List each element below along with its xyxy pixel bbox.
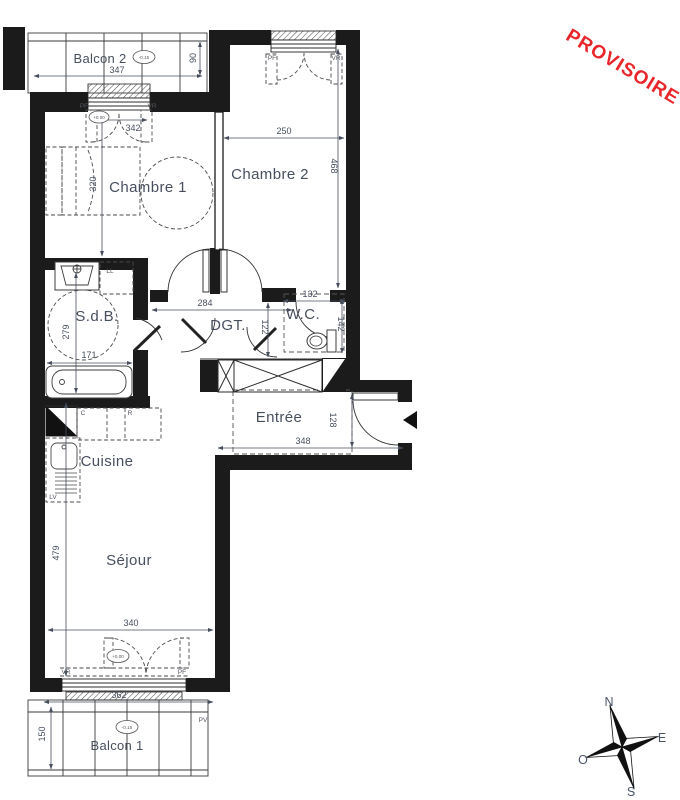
walls xyxy=(3,27,412,692)
sink-faucet xyxy=(62,445,66,449)
partition-chambre1-chambre2 xyxy=(215,112,223,250)
tag-pf-chambre2: PF xyxy=(268,55,276,62)
wall-segment xyxy=(3,27,25,90)
room-label-balcon-2: Balcon 2 xyxy=(74,51,127,66)
tag-lv-dishwasher: LV xyxy=(49,494,57,501)
wall-segment xyxy=(200,360,218,392)
wall-segment xyxy=(150,92,210,112)
wardrobe xyxy=(46,147,62,215)
door-leaf-dgt xyxy=(182,319,206,343)
entrance-arrow-icon xyxy=(403,411,417,429)
tag-vr-chambre2: VR xyxy=(331,55,340,62)
door-jamb xyxy=(180,638,189,668)
closets xyxy=(218,358,346,392)
tag-vr-chambre1: VR xyxy=(147,103,156,110)
compass-west-label: O xyxy=(578,753,588,767)
dim-entree-depth: 128 xyxy=(328,412,338,427)
compass-east-label: E xyxy=(658,731,666,745)
wall-segment xyxy=(150,290,168,302)
tag-c-cooktop: C xyxy=(81,410,86,417)
counter xyxy=(77,408,161,440)
stamp-text: PROVISOIRE xyxy=(562,25,680,109)
floor-plan: 347 90 342 250 468 320 279 171 284 122 1… xyxy=(0,0,680,800)
sdb-fixtures xyxy=(46,262,133,398)
dim-balcon1-depth: 150 xyxy=(37,726,47,741)
wall-segment xyxy=(336,30,360,45)
room-label-chambre-1: Chambre 1 xyxy=(109,179,187,196)
duct-kitchen-triangle xyxy=(46,406,77,436)
dim-chambre2-width: 250 xyxy=(276,126,291,136)
dim-sejour-depth: 479 xyxy=(51,545,61,560)
room-label-sdb: S.d.B. xyxy=(75,308,118,325)
dim-wc-depth: 142 xyxy=(336,316,346,331)
room-label-dgt: DGT. xyxy=(210,317,246,334)
dim-sejour-width: 340 xyxy=(123,618,138,628)
wall-segment xyxy=(186,678,230,692)
window-frame xyxy=(271,40,336,52)
toilet-tank xyxy=(327,330,336,352)
shutter-box xyxy=(88,84,150,98)
compass-north-label: N xyxy=(604,695,613,709)
door-post xyxy=(210,248,220,294)
wall-segment xyxy=(209,30,271,45)
wall-segment xyxy=(346,380,412,392)
tag-pv-balcon1: PV xyxy=(199,717,208,724)
tag-pf-sejour: PF xyxy=(178,669,186,676)
room-label-chambre-2: Chambre 2 xyxy=(231,166,309,183)
level-chambre1-door: +0.00 xyxy=(93,115,105,120)
level-sejour-door: +0.00 xyxy=(112,654,124,659)
wall-segment xyxy=(133,258,148,320)
window-frame xyxy=(88,98,150,110)
dim-balcon2-depth: 90 xyxy=(188,53,198,63)
level-balcon1: -0.15 xyxy=(122,725,133,730)
shutter-box xyxy=(271,31,336,40)
door-arc-entrance xyxy=(353,401,398,445)
dim-chambre2-depth: 468 xyxy=(329,158,339,173)
sink-bowl xyxy=(51,443,77,469)
door-swing xyxy=(304,53,330,80)
dim-dgt-depth: 122 xyxy=(260,319,270,334)
wall-segment xyxy=(218,455,412,470)
wall-segment xyxy=(215,455,230,692)
wall-segment xyxy=(262,288,296,302)
dim-wc-width: 132 xyxy=(302,289,317,299)
wall-segment xyxy=(30,112,45,692)
compass-rose: N E S O xyxy=(573,694,670,800)
wall-segment xyxy=(30,678,62,692)
room-label-sejour: Séjour xyxy=(106,552,152,569)
door-leaf-chambre-1 xyxy=(203,250,209,292)
level-balcon2: -0.15 xyxy=(139,55,150,60)
wall-segment xyxy=(346,45,360,392)
door-swing xyxy=(277,53,304,80)
dim-sdb-depth: 279 xyxy=(61,324,71,339)
dim-entree-width: 348 xyxy=(295,436,310,446)
room-label-wc: W.C. xyxy=(286,306,320,323)
dim-sdb-width: 171 xyxy=(81,350,96,360)
dim-chambre1-window: 342 xyxy=(125,123,140,133)
dim-chambre1-depth: 320 xyxy=(88,176,98,191)
tag-ll-washing-machine: LL xyxy=(106,268,114,275)
compass-south-label: S xyxy=(627,785,635,799)
dim-balcon2-width: 347 xyxy=(109,65,124,75)
door-jamb xyxy=(141,110,152,142)
door-leaf-sdb xyxy=(134,326,160,351)
room-label-entree: Entrée xyxy=(256,409,303,426)
tag-vr-sejour: VR xyxy=(61,669,70,676)
wc-fixtures xyxy=(307,330,336,352)
provisoire-stamp: PROVISOIRE xyxy=(562,25,680,109)
dim-dgt-width: 284 xyxy=(197,298,212,308)
tag-pf-chambre1: PF xyxy=(80,103,88,110)
tag-r-fridge: R xyxy=(128,410,133,417)
compass-star-icon xyxy=(573,694,670,800)
wall-segment xyxy=(398,392,412,402)
dim-balcon1-width: 362 xyxy=(111,690,126,700)
door-leaf-chambre-2 xyxy=(221,250,227,292)
room-label-balcon-1: Balcon 1 xyxy=(91,738,144,753)
room-label-cuisine: Cuisine xyxy=(81,453,134,470)
door-leaf-entrance xyxy=(353,393,398,400)
